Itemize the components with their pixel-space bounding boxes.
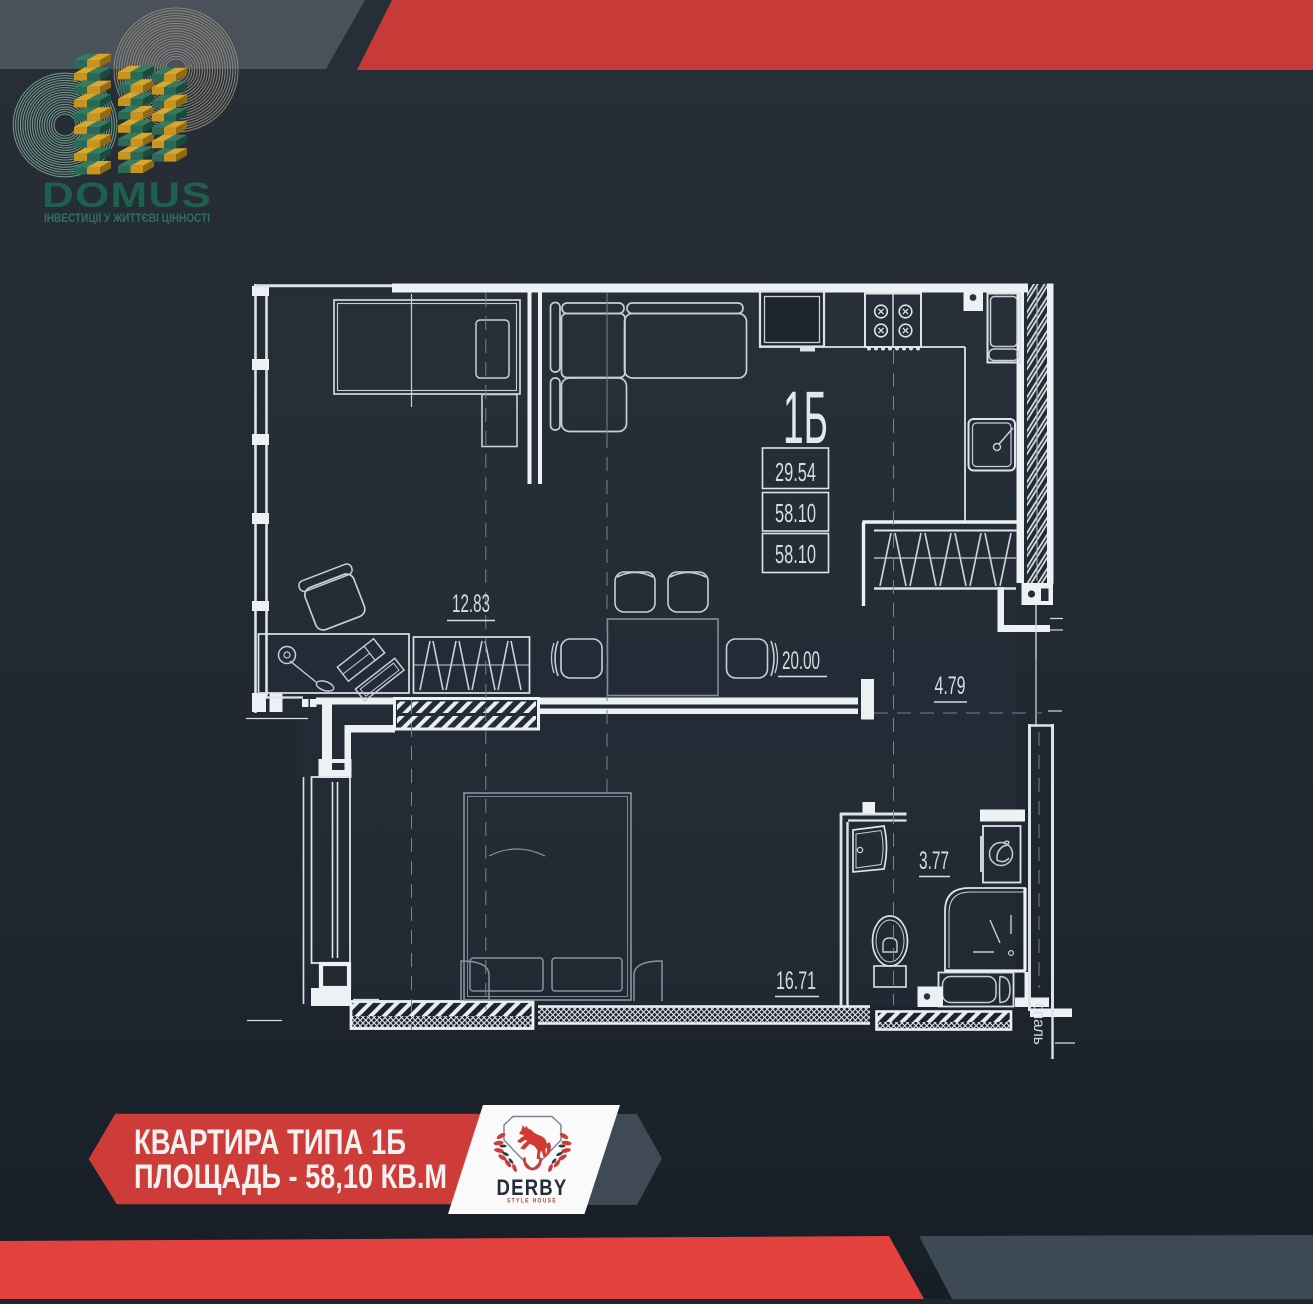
svg-text:DOMUS: DOMUS xyxy=(42,176,212,215)
svg-text:12.83: 12.83 xyxy=(452,590,490,618)
svg-text:ПЛОЩАДЬ - 58,10 КВ.М: ПЛОЩАДЬ - 58,10 КВ.М xyxy=(134,1158,447,1196)
svg-text:КВАРТИРА ТИПА 1Б: КВАРТИРА ТИПА 1Б xyxy=(134,1123,406,1162)
svg-text:16.71: 16.71 xyxy=(776,967,816,995)
svg-text:58.10: 58.10 xyxy=(775,539,816,569)
svg-text:ІНВЕСТИЦІЇ У ЖИТТЄВІ ЦІННОСТІ: ІНВЕСТИЦІЇ У ЖИТТЄВІ ЦІННОСТІ xyxy=(44,212,210,225)
svg-text:4.79: 4.79 xyxy=(935,672,966,700)
svg-text:29.54: 29.54 xyxy=(775,457,816,487)
svg-text:3.77: 3.77 xyxy=(919,847,949,875)
svg-text:STYLE HOUSE: STYLE HOUSE xyxy=(507,1198,557,1205)
svg-text:DERBY: DERBY xyxy=(497,1175,568,1200)
svg-text:58.10: 58.10 xyxy=(775,498,816,528)
svg-text:1Б: 1Б xyxy=(783,376,828,459)
svg-text:20.00: 20.00 xyxy=(782,647,820,675)
svg-text:спаль: спаль xyxy=(1030,1003,1047,1045)
